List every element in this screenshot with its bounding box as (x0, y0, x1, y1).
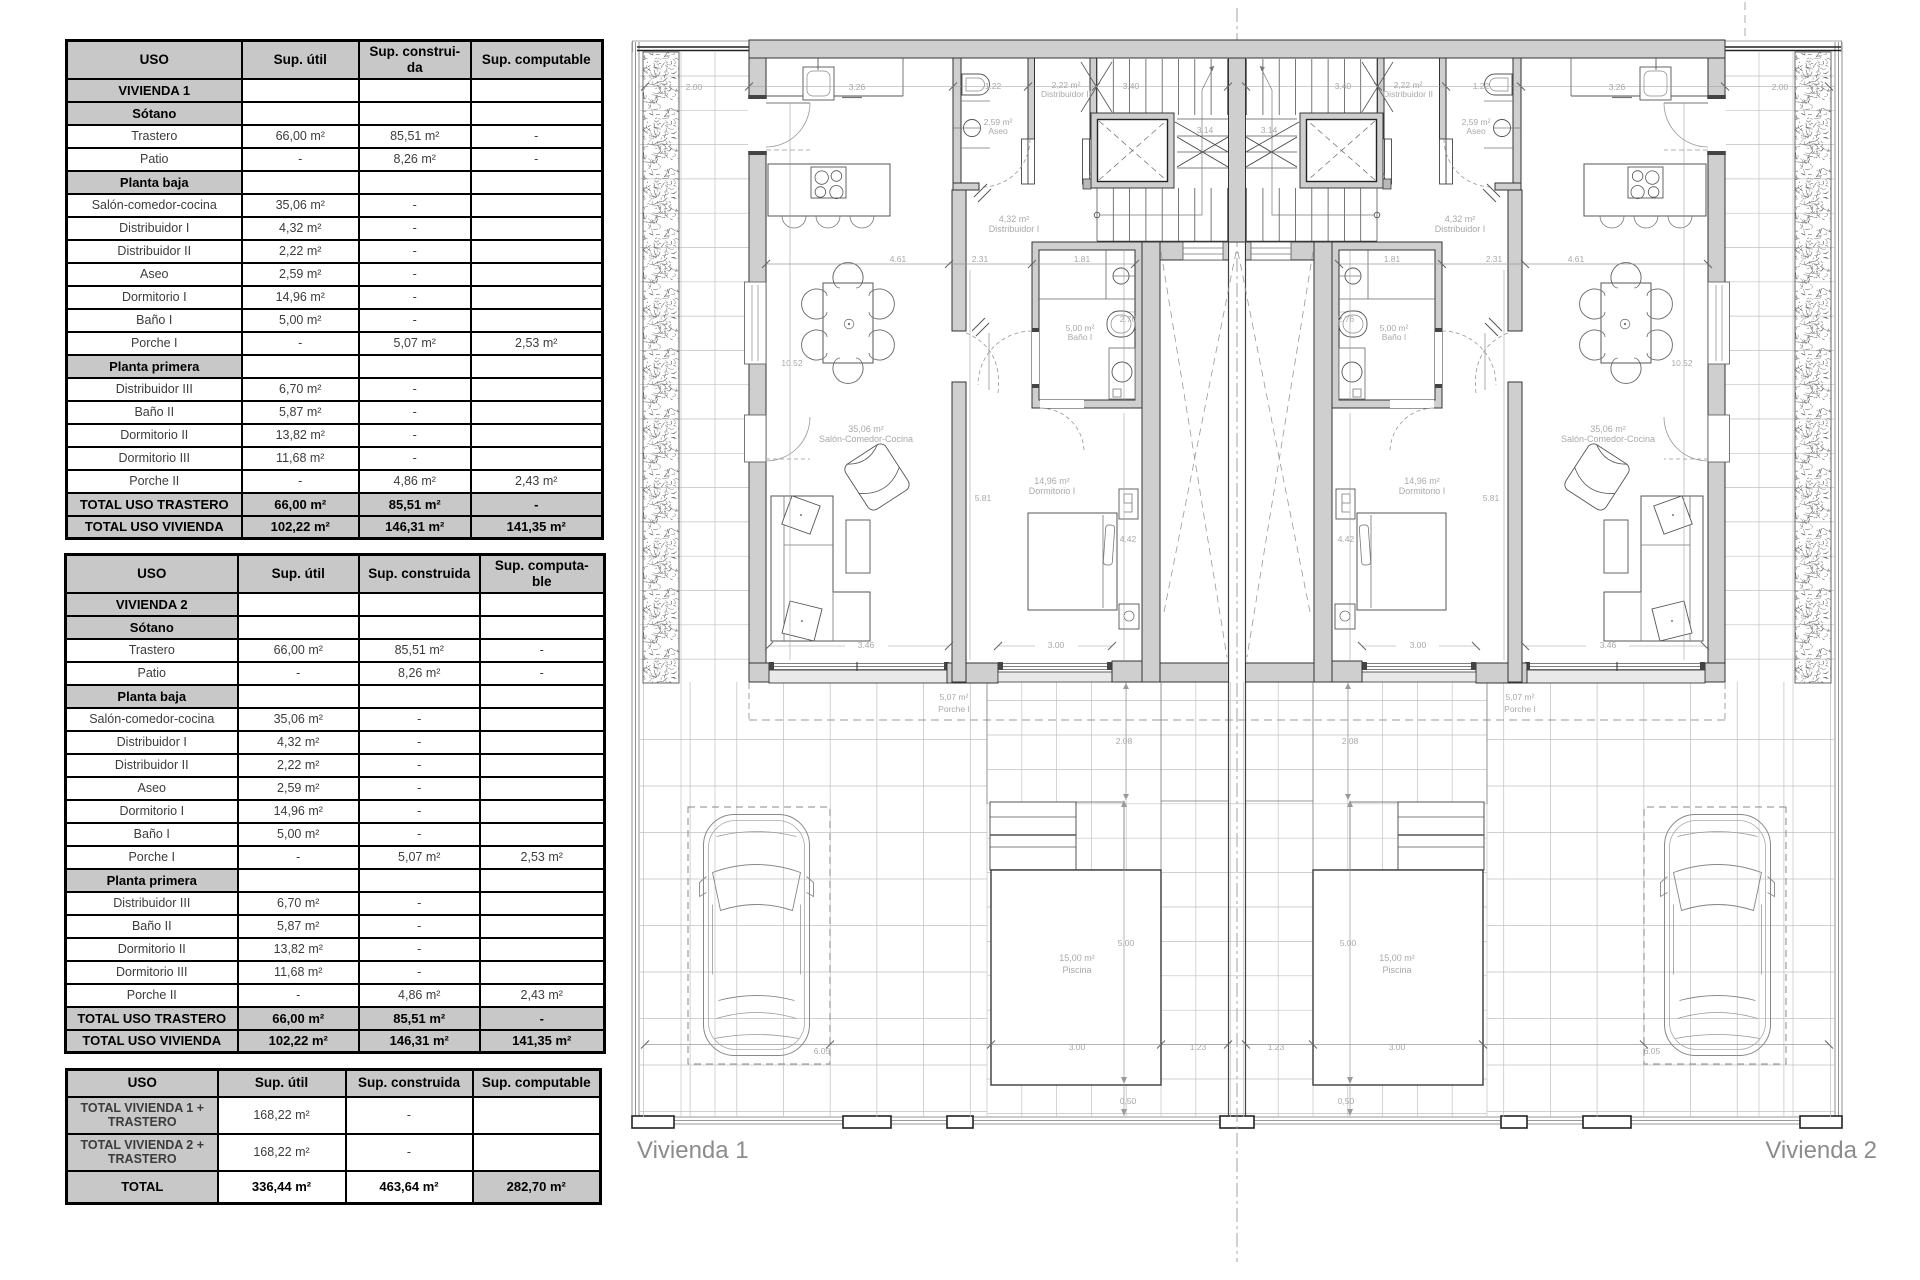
svg-text:4,32 m²: 4,32 m² (1445, 214, 1476, 224)
svg-text:4,32 m²: 4,32 m² (999, 214, 1030, 224)
svg-text:Distribuidor II: Distribuidor II (1383, 89, 1433, 99)
svg-text:6.05: 6.05 (1644, 1046, 1661, 1056)
svg-text:4.61: 4.61 (890, 254, 907, 264)
svg-text:14,96 m²: 14,96 m² (1404, 476, 1440, 486)
svg-text:Piscina: Piscina (1062, 965, 1091, 975)
svg-text:1.81: 1.81 (1074, 254, 1091, 264)
svg-text:4.61: 4.61 (1568, 254, 1585, 264)
svg-text:3.00: 3.00 (1389, 1042, 1406, 1052)
svg-text:0,50: 0,50 (1120, 1096, 1137, 1106)
svg-text:Aseo: Aseo (1466, 126, 1486, 136)
svg-text:5,07 m²: 5,07 m² (1506, 692, 1535, 702)
svg-text:2.76: 2.76 (1338, 314, 1355, 324)
svg-text:3.26: 3.26 (1609, 82, 1626, 92)
svg-text:1.23: 1.23 (1268, 1042, 1285, 1052)
svg-text:5.00: 5.00 (1118, 938, 1135, 948)
svg-text:6.05: 6.05 (814, 1046, 831, 1056)
svg-text:Vivienda 2: Vivienda 2 (1765, 1137, 1877, 1164)
svg-text:2.76: 2.76 (1120, 314, 1137, 324)
svg-text:3.40: 3.40 (1335, 81, 1352, 91)
svg-text:Baño I: Baño I (1382, 332, 1407, 342)
svg-text:1.22: 1.22 (1473, 81, 1490, 91)
svg-text:3.26: 3.26 (849, 82, 866, 92)
svg-text:35,06 m²: 35,06 m² (1590, 424, 1626, 434)
svg-text:Salón-Comedor-Cocina: Salón-Comedor-Cocina (1561, 434, 1655, 444)
svg-text:1.23: 1.23 (1190, 1042, 1207, 1052)
svg-text:Piscina: Piscina (1382, 965, 1411, 975)
svg-text:0,50: 0,50 (1338, 1096, 1355, 1106)
svg-text:5.81: 5.81 (1483, 493, 1500, 503)
svg-text:3.00: 3.00 (1069, 1042, 1086, 1052)
svg-text:3.46: 3.46 (858, 640, 875, 650)
svg-text:5.81: 5.81 (975, 493, 992, 503)
svg-text:15,00 m²: 15,00 m² (1059, 953, 1095, 963)
svg-text:3.14: 3.14 (1197, 125, 1214, 135)
svg-text:Baño I: Baño I (1068, 332, 1093, 342)
svg-text:15,00 m²: 15,00 m² (1379, 953, 1415, 963)
svg-text:3.00: 3.00 (1410, 640, 1427, 650)
svg-text:3.00: 3.00 (1048, 640, 1065, 650)
svg-text:Vivienda 1: Vivienda 1 (637, 1137, 749, 1164)
svg-text:Distribuidor II: Distribuidor II (1041, 89, 1091, 99)
svg-text:2.00: 2.00 (686, 82, 703, 92)
svg-text:Distribuidor I: Distribuidor I (989, 224, 1040, 234)
svg-text:4.42: 4.42 (1338, 534, 1355, 544)
svg-text:14,96 m²: 14,96 m² (1034, 476, 1070, 486)
svg-text:Dormitorio I: Dormitorio I (1029, 486, 1076, 496)
svg-text:2.08: 2.08 (1116, 736, 1133, 746)
svg-text:5,07 m²: 5,07 m² (940, 692, 969, 702)
svg-text:10.52: 10.52 (1671, 358, 1693, 368)
svg-text:2.31: 2.31 (1486, 254, 1503, 264)
svg-text:3.14: 3.14 (1261, 125, 1278, 135)
svg-text:Aseo: Aseo (988, 126, 1008, 136)
svg-text:Porche I: Porche I (938, 704, 970, 714)
svg-text:5.00: 5.00 (1340, 938, 1357, 948)
svg-text:3.46: 3.46 (1600, 640, 1617, 650)
svg-text:2.31: 2.31 (972, 254, 989, 264)
svg-text:35,06 m²: 35,06 m² (848, 424, 884, 434)
svg-text:4.42: 4.42 (1120, 534, 1137, 544)
svg-text:Salón-Comedor-Cocina: Salón-Comedor-Cocina (819, 434, 913, 444)
svg-text:1.81: 1.81 (1384, 254, 1401, 264)
svg-text:Distribuidor I: Distribuidor I (1435, 224, 1486, 234)
svg-text:Porche I: Porche I (1504, 704, 1536, 714)
svg-text:10.52: 10.52 (781, 358, 803, 368)
svg-text:3.40: 3.40 (1123, 81, 1140, 91)
svg-text:1.22: 1.22 (985, 81, 1002, 91)
svg-text:2.00: 2.00 (1772, 82, 1789, 92)
svg-text:2.08: 2.08 (1342, 736, 1359, 746)
svg-text:Dormitorio I: Dormitorio I (1399, 486, 1446, 496)
